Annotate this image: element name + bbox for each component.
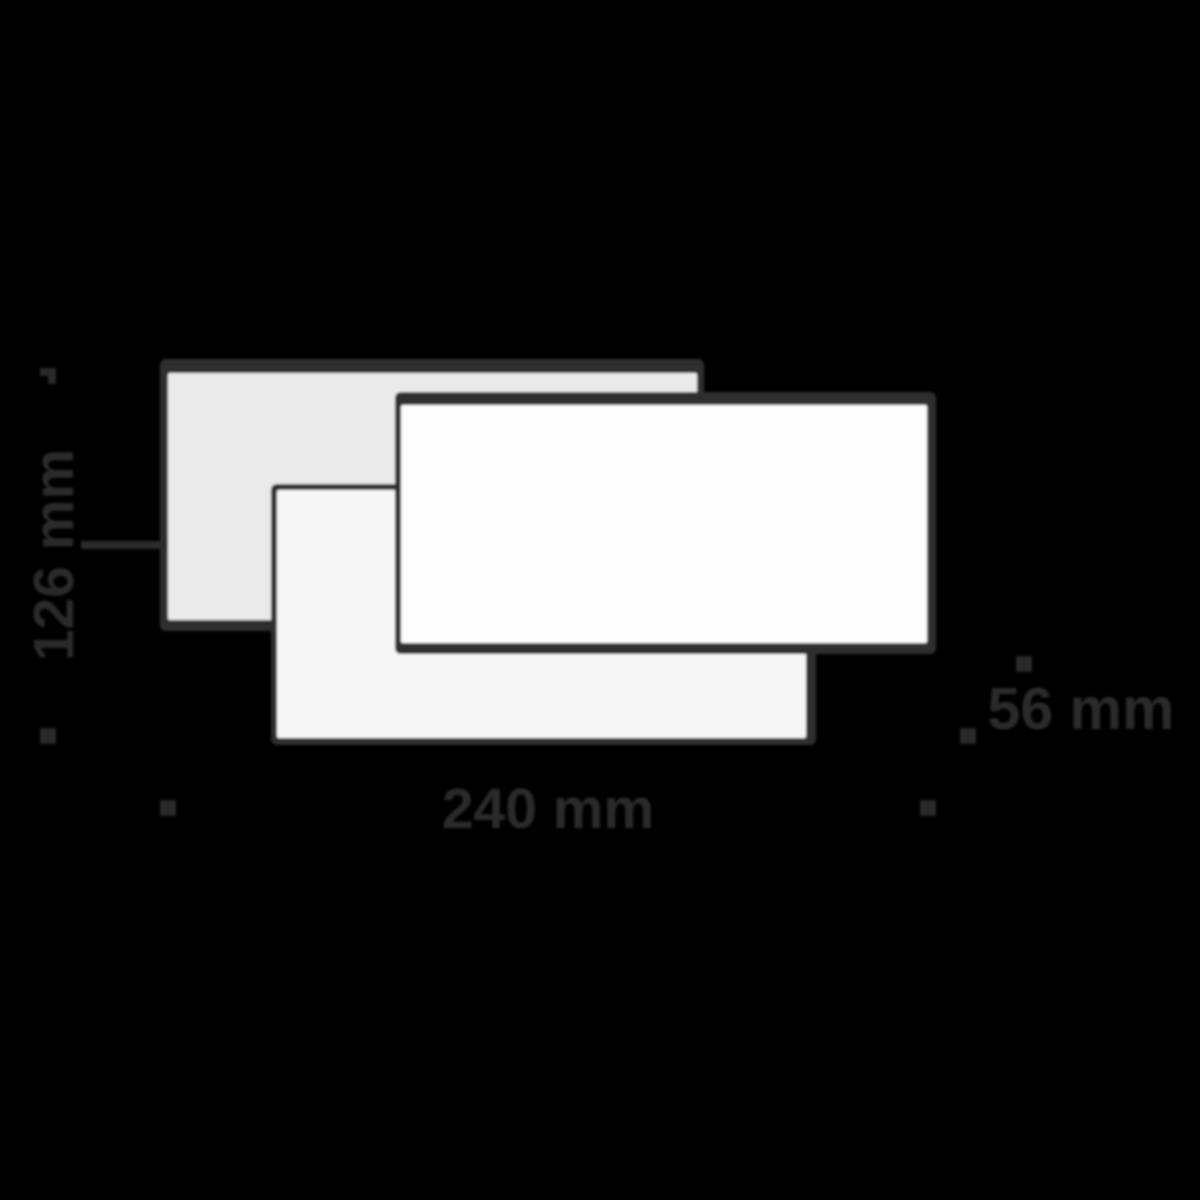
svg-text:240 mm: 240 mm [442, 777, 654, 841]
svg-text:56 mm: 56 mm [988, 676, 1175, 742]
svg-text:126 mm: 126 mm [22, 449, 86, 661]
